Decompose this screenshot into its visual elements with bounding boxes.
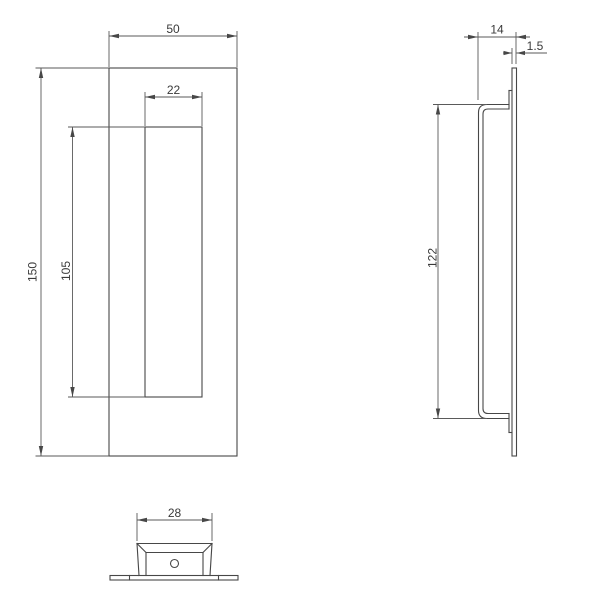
arrowhead — [516, 35, 526, 39]
dim-plate-thickness: 1.5 — [503, 39, 547, 64]
arrowhead — [70, 127, 74, 137]
arrowhead — [436, 105, 440, 115]
dim-opening-height: 105 — [59, 127, 145, 397]
cup-outer-wall-left — [137, 544, 139, 576]
front-outer-plate-outline — [109, 68, 237, 456]
dim-label-cup-height: 122 — [426, 248, 440, 268]
arrowhead — [39, 446, 43, 456]
side-cup-inner-profile — [483, 109, 509, 414]
bottom-view: 28 — [110, 506, 238, 580]
arrowhead — [192, 95, 202, 99]
arrowhead — [39, 68, 43, 78]
arrowhead — [109, 34, 119, 38]
dim-label-plate-thickness: 1.5 — [527, 39, 544, 53]
dim-label-total-depth: 14 — [490, 23, 504, 37]
dim-cup-width: 28 — [137, 506, 212, 541]
screw-hole — [171, 560, 179, 568]
dim-label-opening-height: 105 — [59, 261, 73, 281]
dim-label-opening-width: 22 — [167, 83, 181, 97]
arrowhead — [468, 35, 478, 39]
arrowhead — [436, 409, 440, 419]
front-cup-opening-outline — [145, 127, 202, 397]
side-view: 14 1.5 122 — [426, 23, 548, 457]
arrowhead — [202, 518, 212, 522]
cup-corner-chamfer-left — [137, 544, 146, 553]
arrowhead — [145, 95, 155, 99]
drawing-canvas: 50 22 150 105 — [0, 0, 600, 600]
dim-label-cup-width: 28 — [168, 506, 182, 520]
dim-cup-height: 122 — [426, 105, 488, 419]
arrowhead — [137, 518, 147, 522]
arrowhead — [504, 51, 513, 55]
cup-outer-wall-right — [210, 544, 212, 576]
dim-outer-width: 50 — [109, 22, 237, 67]
front-view: 50 22 150 105 — [26, 22, 238, 456]
dim-label-outer-height: 150 — [26, 262, 40, 282]
technical-drawing: 50 22 150 105 — [0, 0, 600, 600]
dim-total-depth: 14 — [464, 23, 530, 101]
dim-label-outer-width: 50 — [166, 22, 180, 36]
arrowhead — [517, 51, 526, 55]
cup-corner-chamfer-right — [203, 544, 212, 553]
arrowhead — [227, 34, 237, 38]
dim-opening-width: 22 — [145, 83, 202, 126]
side-plate-outline — [512, 68, 517, 456]
arrowhead — [70, 387, 74, 397]
